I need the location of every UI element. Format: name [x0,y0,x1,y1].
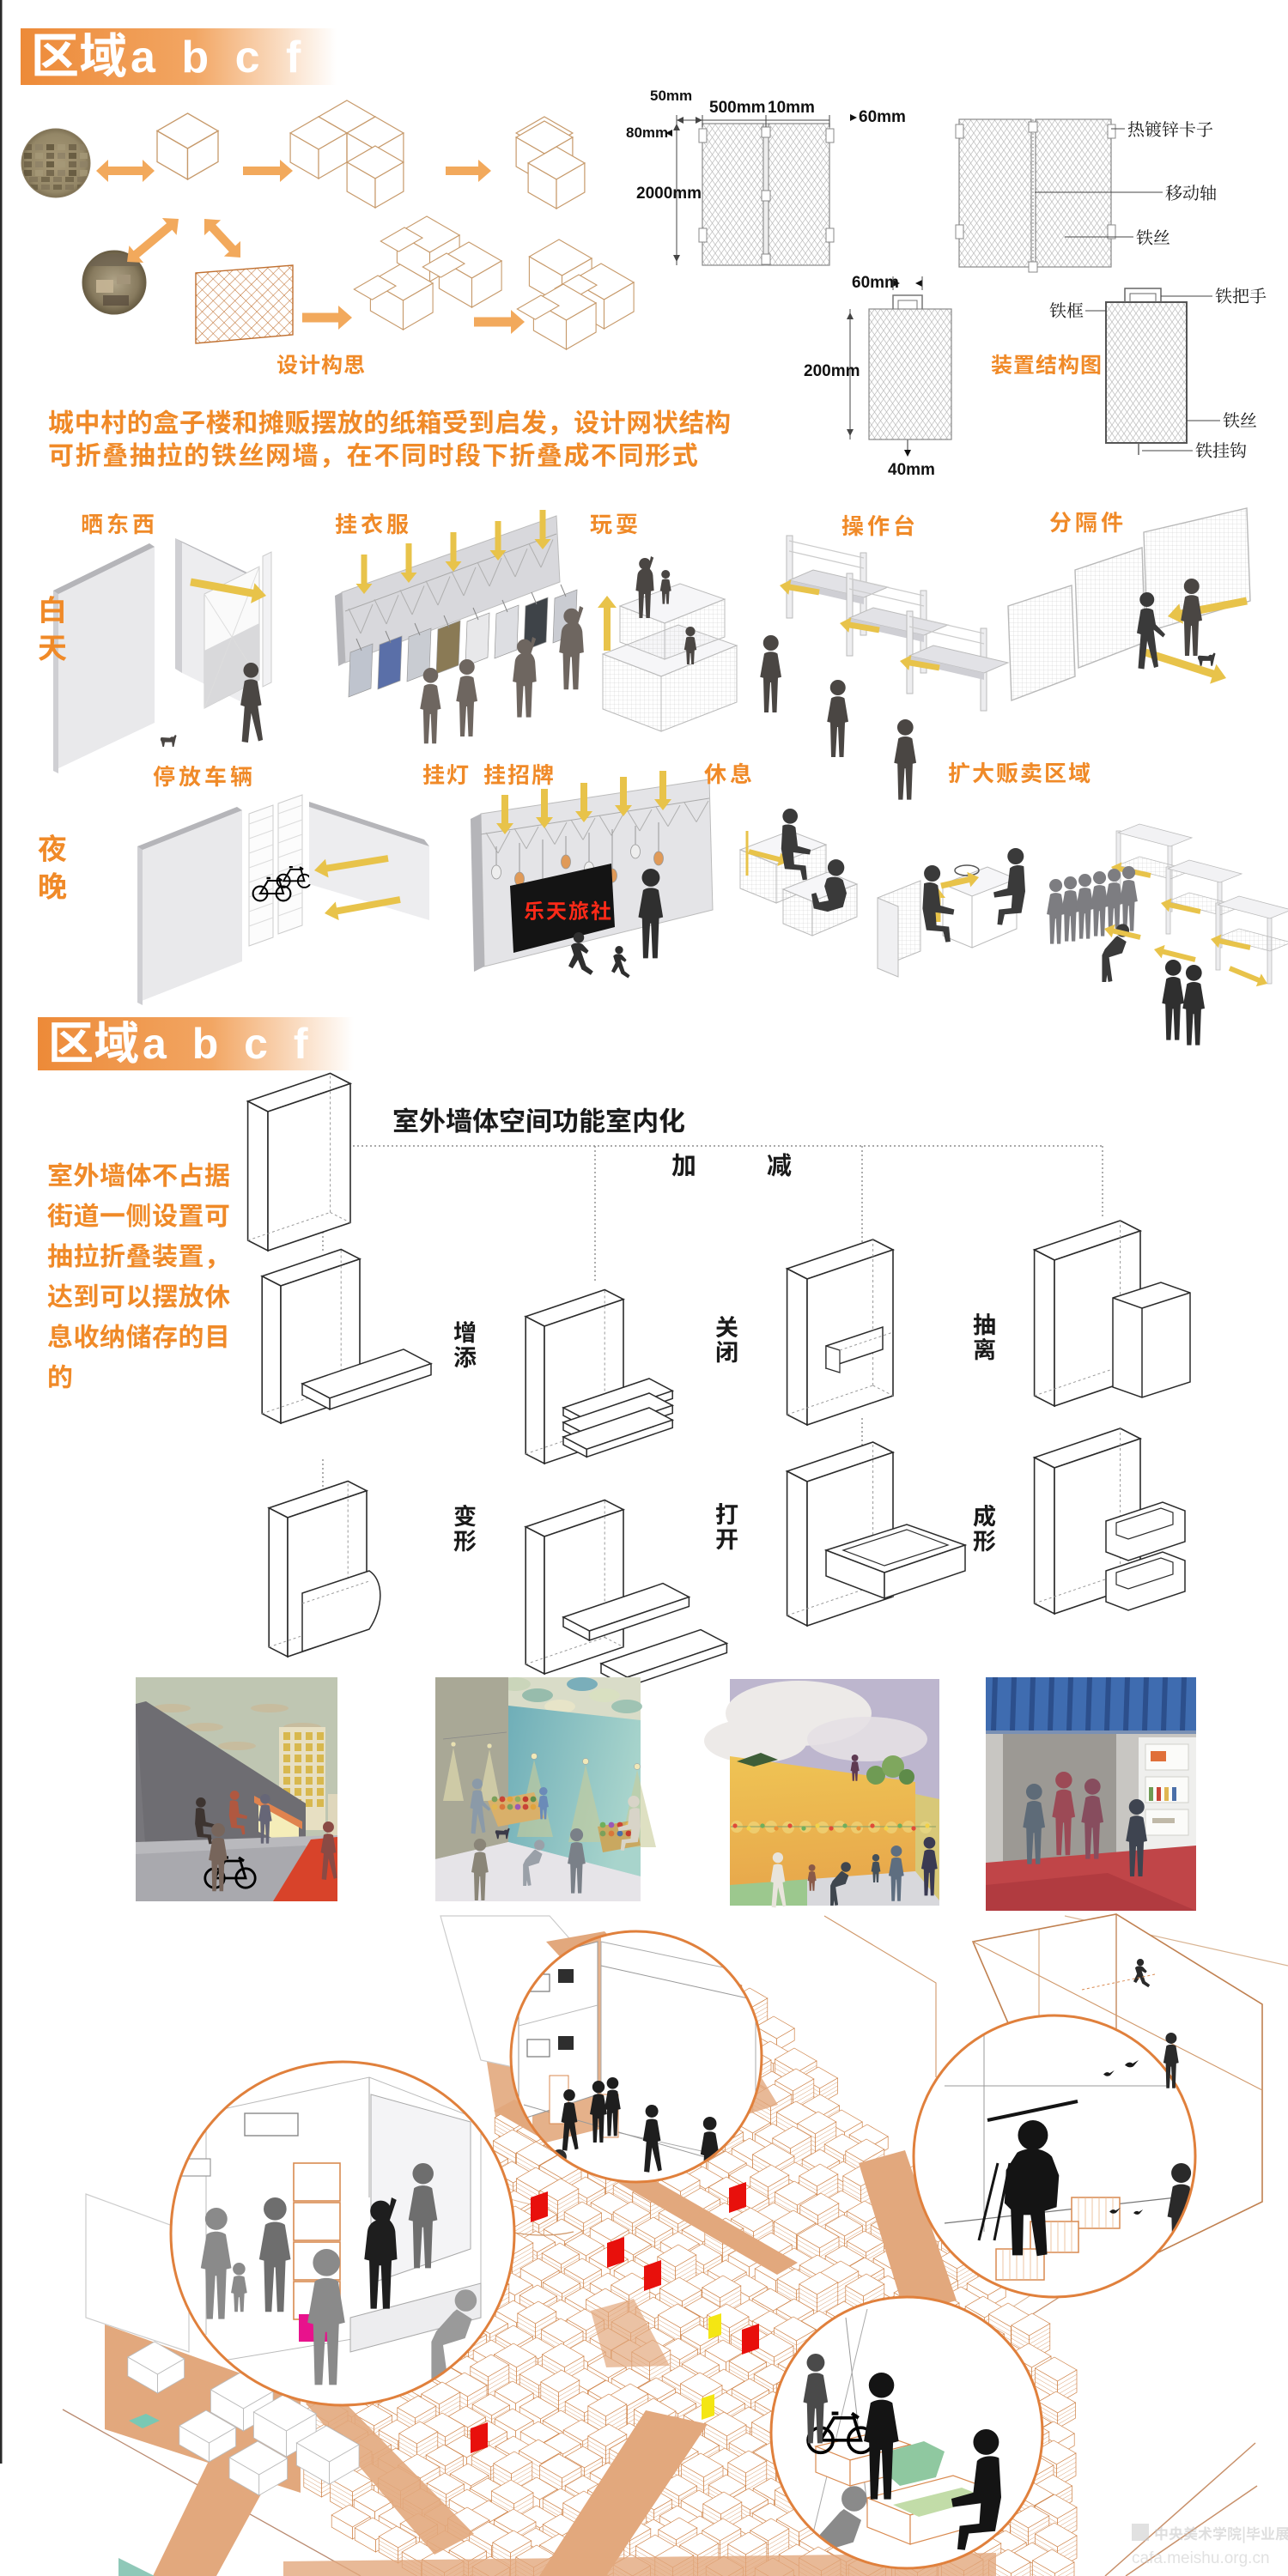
svg-text:40mm: 40mm [888,461,935,479]
svg-text:200mm: 200mm [804,362,860,380]
svg-text:a b c f: a b c f [143,1020,314,1068]
svg-text:60mm: 60mm [859,108,906,126]
svg-text:10mm: 10mm [768,99,815,117]
svg-text:60mm: 60mm [852,274,899,292]
svg-text:2000mm: 2000mm [636,185,702,203]
svg-text:a b c f: a b c f [131,33,307,82]
svg-text:80mm: 80mm [626,124,668,141]
svg-text:cafa.meishu.org.cn: cafa.meishu.org.cn [1132,2549,1270,2567]
svg-text:50mm: 50mm [650,88,692,104]
svg-text:500mm: 500mm [709,99,766,117]
